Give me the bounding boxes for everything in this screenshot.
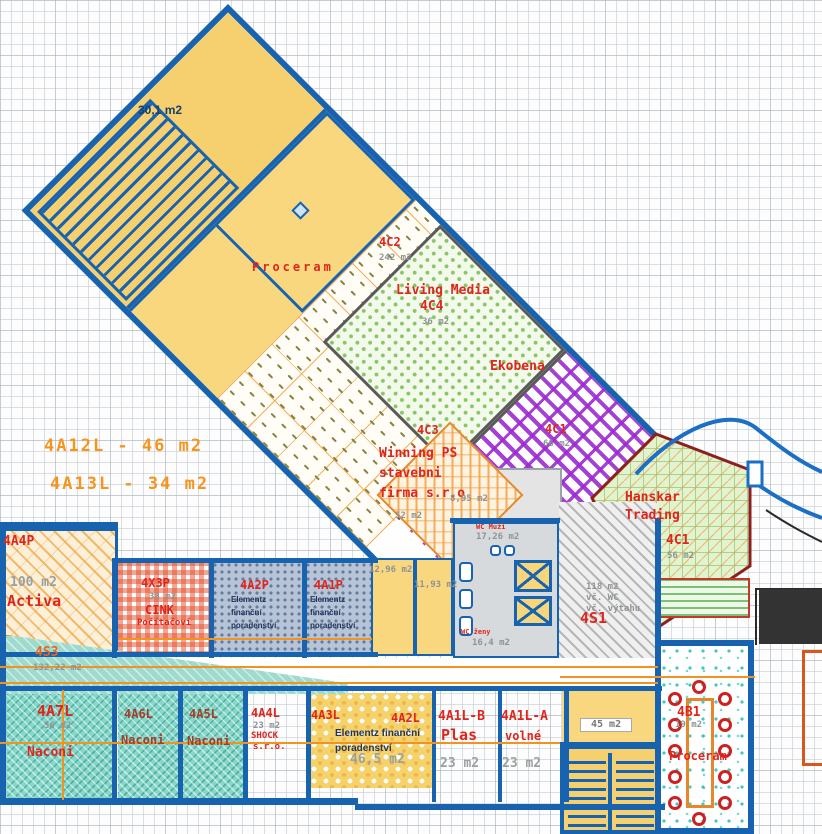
hanskar-name-line2: Trading	[625, 509, 680, 522]
stair-flight-left	[568, 759, 606, 827]
corridor-area: 45 m2	[580, 718, 632, 732]
note-4a13l: 4A13L - 34 m2	[50, 476, 209, 493]
a2p-tenant-line3: poradenství	[231, 622, 276, 630]
a1p-tenant-line3: poradenství	[310, 622, 355, 630]
wall	[0, 522, 6, 804]
unit-4a1lb-code: 4A1L-B	[438, 710, 485, 723]
winning-ps-line2: stavebni	[379, 467, 442, 480]
unit-4a1lb-area: 23 m2	[440, 757, 479, 770]
green-striped-room	[658, 578, 750, 618]
unit-4c1-purple-code: 4C1	[545, 423, 567, 435]
dimension-line	[0, 682, 658, 684]
chair-icon	[718, 692, 732, 706]
stairwell-south	[560, 745, 659, 834]
shock-sro: s.r.o.	[253, 743, 286, 752]
volne-label: volné	[505, 730, 541, 742]
toilet-fixture-1	[459, 562, 473, 582]
elevator-1	[514, 560, 552, 592]
proceram-4b1: Proceram	[669, 750, 727, 762]
unit-4s1-line2: vč. WC	[586, 594, 619, 603]
wall	[243, 690, 248, 802]
unit-4a7l-code: 4A7L	[37, 704, 73, 719]
chair-icon	[718, 796, 732, 810]
unit-4c3-area: 52 m2	[395, 512, 422, 521]
unit-4a2l-code: 4A2L	[391, 712, 420, 724]
room-1296-area: 12,96 m2	[369, 566, 412, 575]
winning-ps-line1: Winning PS	[379, 447, 457, 460]
a2p-tenant-line2: finanční	[231, 609, 262, 617]
unit-4a1la-area: 23 m2	[502, 757, 541, 770]
wall	[748, 640, 754, 834]
sink-fixture-1	[490, 545, 501, 556]
shaft-dark-area	[759, 589, 822, 644]
activa-name: Activa	[7, 594, 61, 609]
unit-4s1-line1: 118 m2	[586, 583, 619, 592]
wc-muzi-area: 17,26 m2	[476, 533, 519, 542]
unit-4a4p-code: 4A4P	[3, 535, 34, 548]
unit-4s1-code: 4S1	[580, 611, 607, 626]
wall	[112, 558, 117, 658]
unit-4c2-code: 4C2	[379, 236, 401, 248]
neighbor-structure-outline	[802, 650, 822, 766]
a2l-tenant-line1: Elementz finanční	[335, 729, 420, 739]
elevator-2	[514, 596, 552, 626]
wall	[0, 522, 118, 528]
a2p-tenant-line1: Elementz	[231, 596, 266, 604]
hanskar-name-line1: Hanskar	[625, 491, 680, 504]
unit-4a1p-code: 4A1P	[314, 579, 343, 591]
unit-4a3l-code: 4A3L	[311, 709, 340, 721]
wall	[112, 558, 378, 563]
wall	[498, 690, 502, 802]
floor-plan-canvas: 4A12L - 46 m24A13L - 34 m230,1 m2Procera…	[0, 0, 822, 834]
unit-4c2-area: 242 m2	[379, 254, 412, 263]
unit-4a5l-code: 4A5L	[189, 708, 218, 720]
wall	[355, 804, 665, 810]
note-4a12l: 4A12L - 46 m2	[44, 438, 203, 455]
chair-icon	[718, 770, 732, 784]
wall	[660, 828, 754, 834]
unit-4a4l-area: 23 m2	[253, 722, 280, 731]
stair-flight-right	[616, 759, 654, 827]
chair-icon	[668, 796, 682, 810]
proceram-wing-label: Proceram	[252, 261, 334, 273]
cink-name: CINK	[145, 604, 174, 616]
naconi-4a6l: Naconi	[121, 734, 164, 746]
unit-4a4p-area: 100 m2	[10, 576, 57, 589]
wall	[178, 690, 183, 802]
wall	[432, 690, 436, 802]
room-301-area: 30,1 m2	[138, 104, 182, 116]
unit-4c3-code: 4C3	[417, 424, 439, 436]
toilet-fixture-2	[459, 589, 473, 609]
wall	[560, 742, 660, 747]
chair-icon	[668, 770, 682, 784]
wall	[209, 558, 214, 658]
shock-name: SHOCK	[251, 732, 278, 741]
unit-4a4l-code: 4A4L	[251, 707, 280, 719]
unit-4x3p-code: 4X3P	[141, 577, 170, 589]
unit-4x3p-area: 38 m2	[149, 593, 176, 602]
unit-4s3-area: 132,22 m2	[33, 664, 82, 673]
wc-muzi-name: WC Muži	[476, 524, 506, 531]
dimension-line	[118, 638, 372, 640]
unit-4b1-area: 19 m2	[675, 721, 702, 730]
naconi-4a5l: Naconi	[187, 735, 230, 747]
unit-4c4-area: 36 m2	[422, 318, 449, 327]
unit-4c1-purple-area: 66 m2	[543, 440, 570, 449]
wall	[302, 558, 307, 658]
unit-4b1-code: 4B1	[677, 706, 700, 719]
sink-fixture-2	[504, 545, 515, 556]
room-1193	[415, 558, 453, 656]
stair-divider	[608, 753, 612, 831]
chair-icon	[718, 718, 732, 732]
living-media-name: Living Media	[396, 284, 490, 297]
a1p-tenant-line1: Elementz	[310, 596, 345, 604]
wall	[112, 690, 117, 802]
chair-icon	[692, 812, 706, 826]
unit-4a7l-area: 56 m2	[44, 722, 71, 731]
chair-icon	[668, 692, 682, 706]
wall	[660, 640, 752, 646]
unit-4a1la-code: 4A1L-A	[501, 710, 548, 723]
ekobena-name: Ekobena	[490, 360, 545, 373]
unit-4s3-code: 4S3	[35, 646, 58, 659]
unit-4c1-green-code: 4C1	[666, 534, 689, 547]
cink-name-line2: Počítačoví	[137, 619, 191, 628]
wc-small-area: 8,95 m2	[450, 495, 488, 504]
unit-4a6l-code: 4A6L	[124, 708, 153, 720]
wc-zeny-area: 16,4 m2	[472, 639, 510, 648]
unit-4a2p-code: 4A2P	[240, 579, 269, 591]
wall	[306, 690, 311, 802]
unit-4a2l-area: 46,5 m2	[350, 753, 405, 766]
dimension-line	[0, 666, 658, 668]
wall	[0, 686, 662, 691]
room-1193-area: 11,93 m2	[414, 581, 457, 590]
dimension-line	[560, 676, 755, 678]
plas-name: Plas	[441, 728, 477, 743]
unit-4c4-code: 4C4	[420, 300, 443, 313]
unit-4c1-green-area: 56 m2	[667, 552, 694, 561]
chair-icon	[692, 680, 706, 694]
naconi-4a7l: Naconi	[27, 746, 74, 759]
wc-zeny-name: WC ženy	[461, 629, 491, 636]
a1p-tenant-line2: finanční	[310, 609, 341, 617]
